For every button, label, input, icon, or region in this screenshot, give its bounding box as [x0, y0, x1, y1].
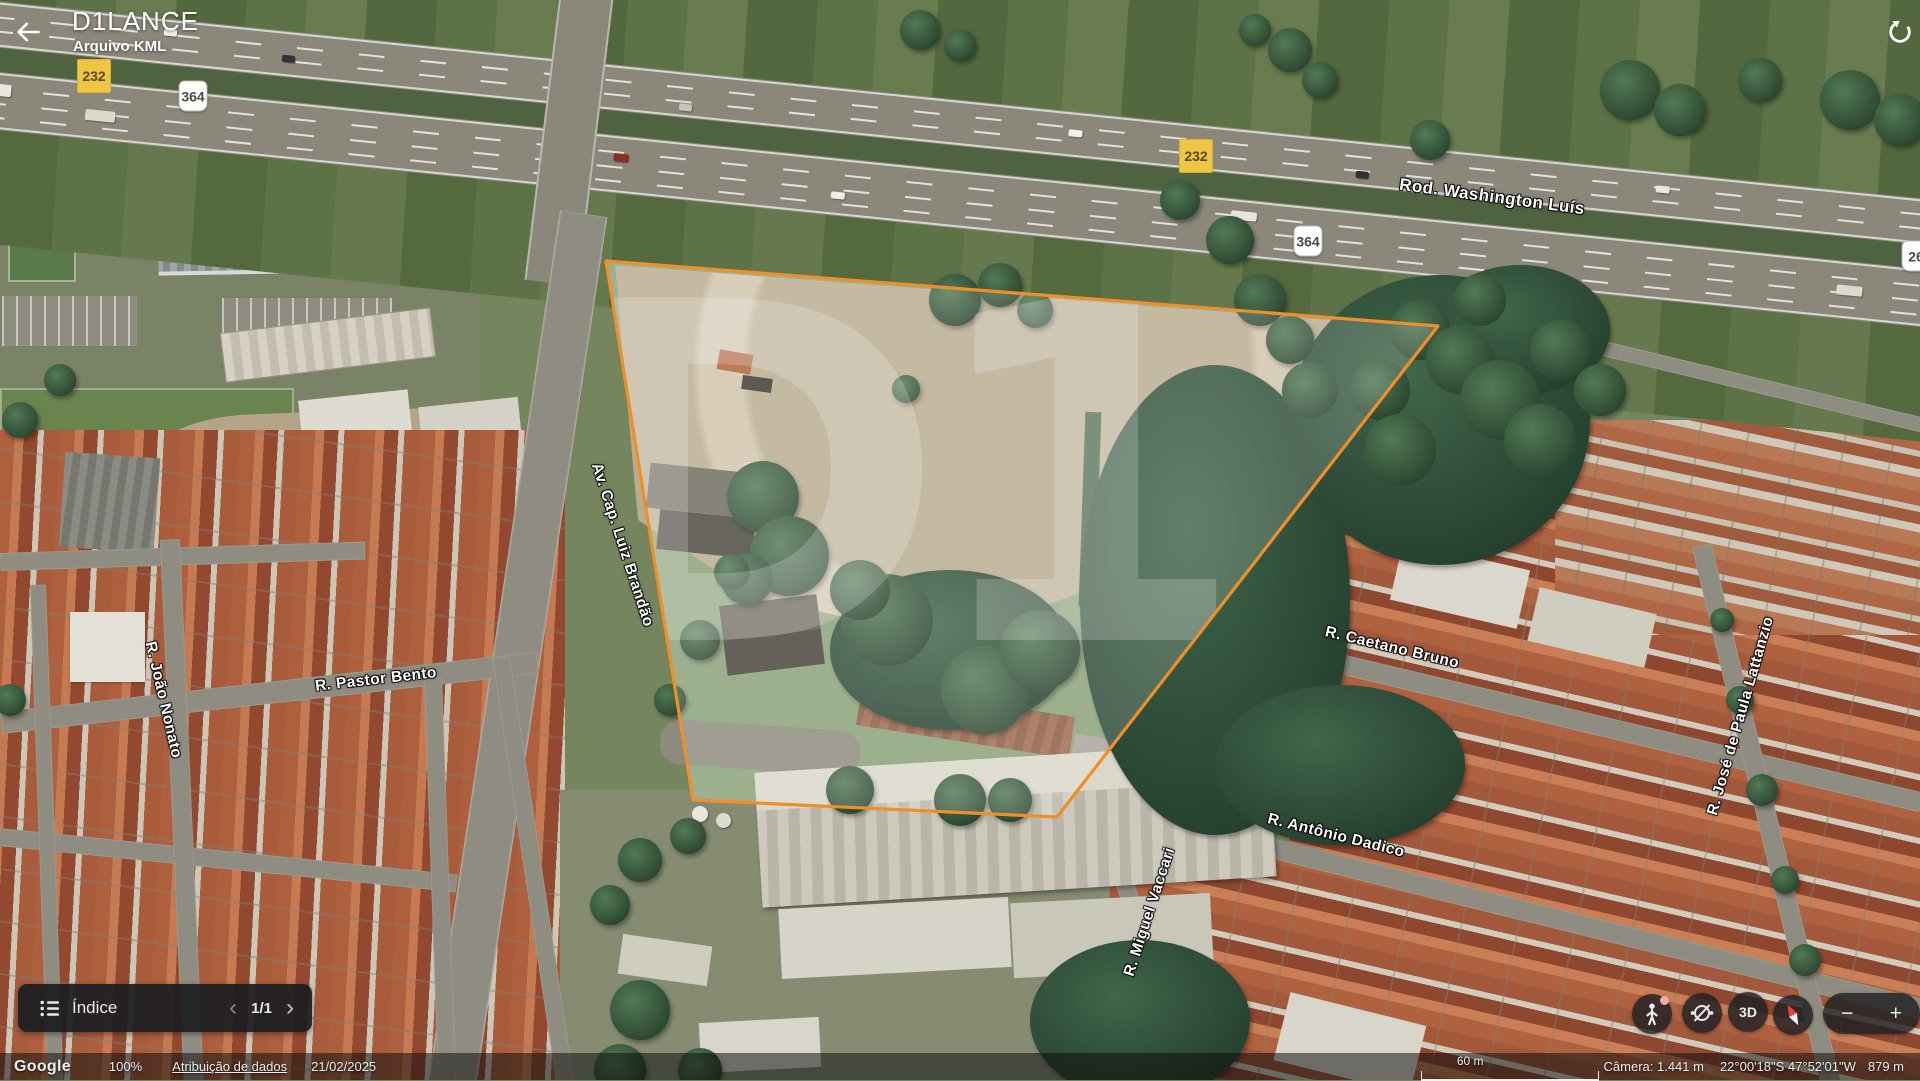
3d-label: 3D [1739, 1004, 1757, 1020]
property-watermark: D1 [556, 204, 1223, 751]
google-earth-app: { "header": { "title": "D1LANCE", "subti… [0, 0, 1920, 1080]
zoom-control: − + [1823, 993, 1920, 1034]
zoom-in-button[interactable]: + [1890, 1002, 1902, 1026]
index-prev-button[interactable]: ‹ [229, 998, 237, 1018]
pointer-coordinates: 22°00'18"S 47°52'01"W [1720, 1059, 1856, 1074]
back-arrow-icon [14, 18, 42, 46]
orbit-button[interactable] [1682, 993, 1722, 1033]
imagery-date: 21/02/2025 [311, 1059, 376, 1074]
rotate-reset-icon [1881, 13, 1920, 52]
pegman-icon [1641, 1002, 1663, 1026]
zoom-percentage: 100% [109, 1059, 142, 1074]
back-button[interactable] [14, 18, 42, 46]
route-shield-364: 364 [1294, 226, 1323, 257]
page-subtitle: Arquivo KML [73, 38, 166, 55]
index-page-indicator: 1/1 [251, 1000, 272, 1017]
status-bar: Google 100% Atribuição de dados 21/02/20… [0, 1053, 1920, 1080]
terrain-elevation: 879 m [1868, 1059, 1904, 1074]
list-icon [40, 1000, 60, 1017]
page-title: D1LANCE [72, 6, 199, 37]
map-canvas[interactable]: D1 Rod. Washington Luís Av. Cap. Luiz Br… [0, 0, 1920, 1080]
route-shield-232: 232 [77, 59, 111, 93]
3d-toggle-button[interactable]: 3D [1728, 992, 1768, 1032]
street-view-button[interactable] [1632, 994, 1672, 1034]
compass-icon [1776, 998, 1811, 1033]
reset-view-button[interactable] [1886, 18, 1914, 46]
orbit-disabled-icon [1690, 1001, 1714, 1025]
index-next-button[interactable]: › [286, 998, 294, 1018]
route-shield-364: 364 [179, 81, 208, 112]
scale-label: 60 m [1457, 1054, 1484, 1068]
index-panel[interactable]: Índice ‹ 1/1 › [18, 984, 312, 1032]
compass-button[interactable] [1773, 995, 1813, 1035]
data-attribution-link[interactable]: Atribuição de dados [172, 1059, 287, 1074]
zoom-out-button[interactable]: − [1841, 1002, 1853, 1026]
index-panel-label: Índice [72, 998, 117, 1018]
google-logo: Google [14, 1058, 71, 1076]
route-shield-232: 232 [1179, 139, 1213, 173]
route-shield-partial: 26 [1902, 241, 1920, 272]
kml-polygon-overlay[interactable]: D1 [0, 0, 1920, 1080]
camera-altitude: Câmera: 1.441 m [1604, 1059, 1704, 1074]
street-view-badge [1660, 996, 1669, 1005]
